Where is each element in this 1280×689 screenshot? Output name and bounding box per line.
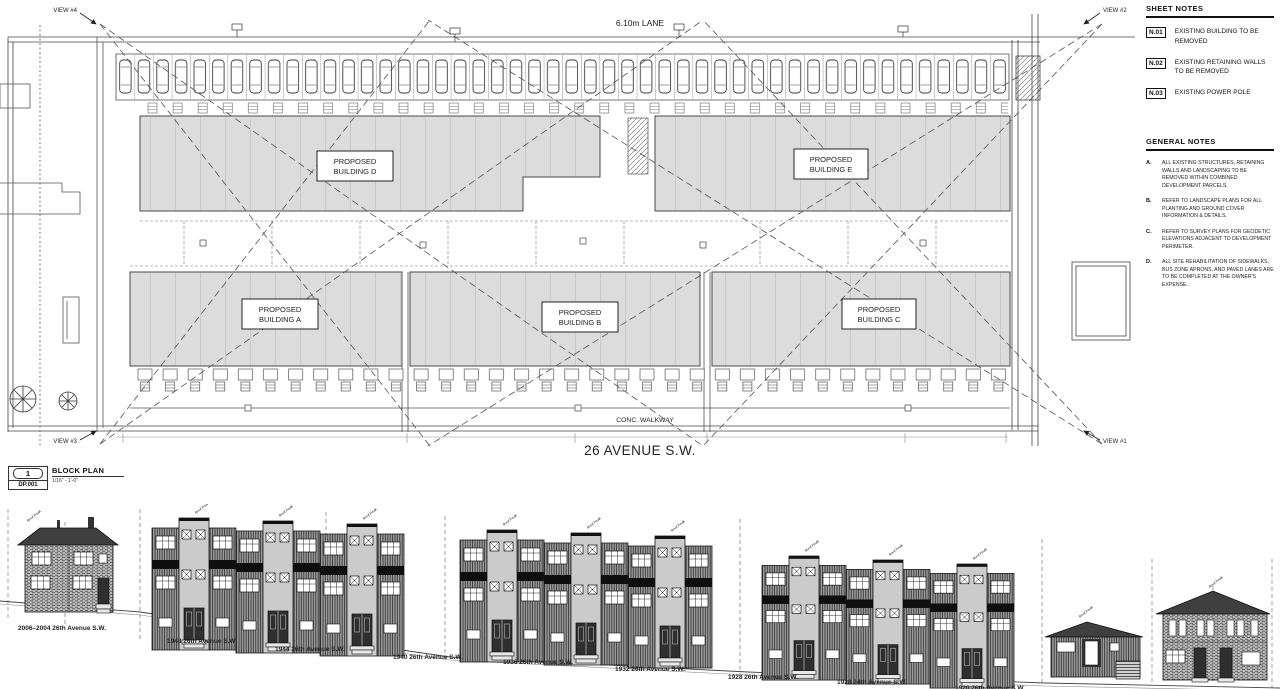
svg-text:BUILDING C: BUILDING C: [858, 315, 902, 324]
note-tag: N.03: [1146, 88, 1166, 99]
sheet-number: DP.001: [9, 480, 47, 489]
address-1940: 1940 26th Avenue S.W.: [393, 654, 463, 661]
stair-hatch: [628, 118, 648, 174]
courtyard-fences: [130, 221, 1008, 266]
address-1920: 1920 26th Avenue S.W.: [955, 685, 1025, 689]
svg-text:Roof Peak: Roof Peak: [502, 513, 518, 527]
note-tag: B.: [1146, 198, 1156, 221]
lane-markers: [232, 24, 908, 42]
address-2006-2004: 2006–2004 26th Avenue S.W.: [18, 625, 106, 632]
courtyard-posts: [200, 238, 926, 248]
street-label: 26 AVENUE S.W.: [584, 443, 696, 458]
building-label-d: PROPOSED BUILDING D: [317, 151, 393, 181]
general-note-a: A. ALL EXISTING STRUCTURES, RETAINING WA…: [1146, 160, 1274, 190]
rear-steps-row: [140, 100, 1008, 116]
detail-tag: 1 DP.001: [8, 466, 48, 490]
sheet-note-2: N.02 EXISTING RETAINING WALLS TO BE REMO…: [1146, 58, 1274, 78]
svg-text:Roof Peak: Roof Peak: [670, 519, 686, 533]
svg-text:Roof Peak: Roof Peak: [194, 504, 210, 515]
street-elevations: Roof Peak Roof Peak Roof Peak Roof Peak …: [0, 504, 1280, 689]
svg-text:Roof Peak: Roof Peak: [278, 504, 294, 518]
divider: [1146, 16, 1274, 18]
svg-text:PROPOSED: PROPOSED: [559, 308, 602, 317]
note-text: REFER TO LANDSCAPE PLANS FOR ALL PLANTIN…: [1162, 198, 1274, 221]
townhouse-group-1: [152, 518, 404, 656]
note-tag: N.02: [1146, 58, 1166, 69]
walkway-label: CONC. WALKWAY: [616, 417, 674, 424]
general-note-b: B. REFER TO LANDSCAPE PLANS FOR ALL PLAN…: [1146, 198, 1274, 221]
note-tag: D.: [1146, 259, 1156, 289]
svg-text:Roof Peak: Roof Peak: [362, 507, 378, 521]
sheet-note-3: N.03 EXISTING POWER POLE: [1146, 88, 1274, 99]
view-2-label: VIEW #2: [1103, 8, 1127, 14]
address-1928-24th: 1928 24th Avenue S.W.: [837, 679, 907, 686]
house-bungalow: [1045, 622, 1143, 679]
tree-symbols: [10, 386, 77, 412]
lane-label: 6.10m LANE: [616, 18, 665, 28]
house-far-right-duplex: [1156, 591, 1270, 682]
general-note-d: D. ALL SITE REHABILITATION OF SIDEWALKS,…: [1146, 259, 1274, 289]
block-plan: 6.10m LANE: [0, 0, 1140, 465]
svg-text:BUILDING A: BUILDING A: [259, 315, 301, 324]
house-2006-2004: [18, 517, 118, 613]
svg-text:PROPOSED: PROPOSED: [810, 155, 853, 164]
svg-text:Roof Peak: Roof Peak: [26, 509, 42, 523]
sheet-note-1: N.01 EXISTING BUILDING TO BE REMOVED: [1146, 27, 1274, 47]
drawing-title: BLOCK PLAN: [52, 466, 124, 477]
building-label-a: PROPOSED BUILDING A: [242, 299, 318, 329]
townhouse-group-2: [460, 530, 712, 668]
svg-text:BUILDING B: BUILDING B: [559, 318, 602, 327]
note-tag: A.: [1146, 160, 1156, 190]
building-label-e: PROPOSED BUILDING E: [794, 149, 868, 179]
svg-text:Roof Peak: Roof Peak: [804, 539, 820, 553]
svg-text:BUILDING E: BUILDING E: [810, 165, 853, 174]
sheet-notes: SHEET NOTES N.01 EXISTING BUILDING TO BE…: [1146, 4, 1274, 99]
svg-text:BUILDING D: BUILDING D: [334, 167, 378, 176]
drawing-sheet: 6.10m LANE: [0, 0, 1280, 689]
svg-text:PROPOSED: PROPOSED: [334, 157, 377, 166]
note-text: EXISTING RETAINING WALLS TO BE REMOVED: [1175, 58, 1267, 78]
building-label-c: PROPOSED BUILDING C: [842, 299, 916, 329]
svg-text:PROPOSED: PROPOSED: [858, 305, 901, 314]
dimension-ticks: [116, 433, 1008, 443]
general-note-c: C. REFER TO SURVEY PLANS FOR GEODETIC EL…: [1146, 229, 1274, 252]
address-1928-26th: 1928 26th Avenue S.W.: [728, 674, 798, 681]
address-1948: 1948 26th Avenue S.W.: [167, 638, 237, 645]
left-features: [0, 25, 103, 446]
address-1944: 1944 26th Avenue S.W.: [275, 646, 345, 653]
svg-text:Roof Peak: Roof Peak: [1208, 575, 1224, 589]
general-notes: GENERAL NOTES A. ALL EXISTING STRUCTURES…: [1146, 137, 1274, 289]
note-tag: N.01: [1146, 27, 1166, 38]
note-text: ALL SITE REHABILITATION OF SIDEWALKS, BU…: [1162, 259, 1274, 289]
note-text: EXISTING POWER POLE: [1175, 88, 1267, 98]
svg-text:Roof Peak: Roof Peak: [888, 543, 904, 557]
title-block: 1 DP.001 BLOCK PLAN 1/16" - 1'-0": [8, 466, 124, 490]
divider: [1146, 149, 1274, 151]
notes-panel: SHEET NOTES N.01 EXISTING BUILDING TO BE…: [1146, 4, 1274, 297]
view-4-label: VIEW #4: [53, 8, 77, 14]
general-notes-title: GENERAL NOTES: [1146, 137, 1274, 146]
parking-row: [116, 54, 1009, 100]
view-1-label: VIEW #1: [1103, 439, 1127, 445]
building-label-b: PROPOSED BUILDING B: [542, 302, 618, 332]
svg-text:Roof Peak: Roof Peak: [972, 547, 988, 561]
detail-number: 1: [13, 468, 43, 479]
note-text: ALL EXISTING STRUCTURES, RETAINING WALLS…: [1162, 160, 1274, 190]
drawing-scale: 1/16" - 1'-0": [52, 477, 124, 484]
townhouse-group-3: [762, 556, 1014, 688]
address-1932: 1932 26th Avenue S.W.: [615, 666, 685, 673]
address-1936: 1936 26th Avenue S.W.: [503, 659, 573, 666]
right-features: [1016, 56, 1130, 340]
front-porches: [133, 367, 1010, 394]
svg-text:Roof Peak: Roof Peak: [1078, 605, 1094, 619]
note-tag: C.: [1146, 229, 1156, 252]
svg-text:PROPOSED: PROPOSED: [259, 305, 302, 314]
note-text: EXISTING BUILDING TO BE REMOVED: [1175, 27, 1267, 47]
sheet-notes-title: SHEET NOTES: [1146, 4, 1274, 13]
svg-text:Roof Peak: Roof Peak: [586, 516, 602, 530]
view-3-label: VIEW #3: [53, 439, 77, 445]
note-text: REFER TO SURVEY PLANS FOR GEODETIC ELEVA…: [1162, 229, 1274, 252]
